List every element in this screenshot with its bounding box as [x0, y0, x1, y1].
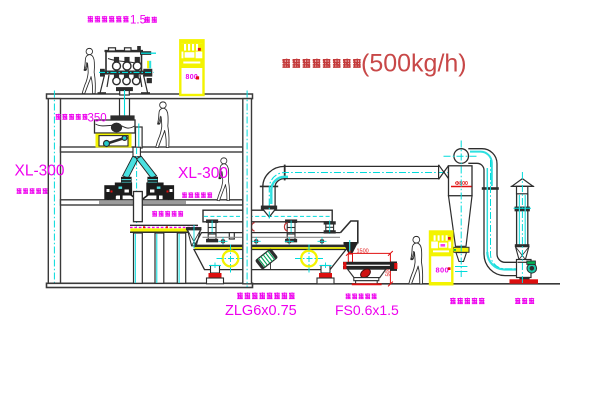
svg-text:(500kg/h): (500kg/h) — [361, 50, 467, 78]
svg-text:XL-300: XL-300 — [178, 165, 228, 182]
svg-text:800: 800 — [436, 266, 449, 275]
svg-text:ZLG6x0.75: ZLG6x0.75 — [225, 303, 297, 319]
svg-text:XL-300: XL-300 — [15, 163, 65, 180]
svg-text:FS0.6x1.5: FS0.6x1.5 — [335, 302, 399, 318]
svg-text:350: 350 — [88, 113, 107, 125]
svg-text:1.5: 1.5 — [130, 14, 146, 26]
svg-text:1500: 1500 — [357, 248, 369, 254]
